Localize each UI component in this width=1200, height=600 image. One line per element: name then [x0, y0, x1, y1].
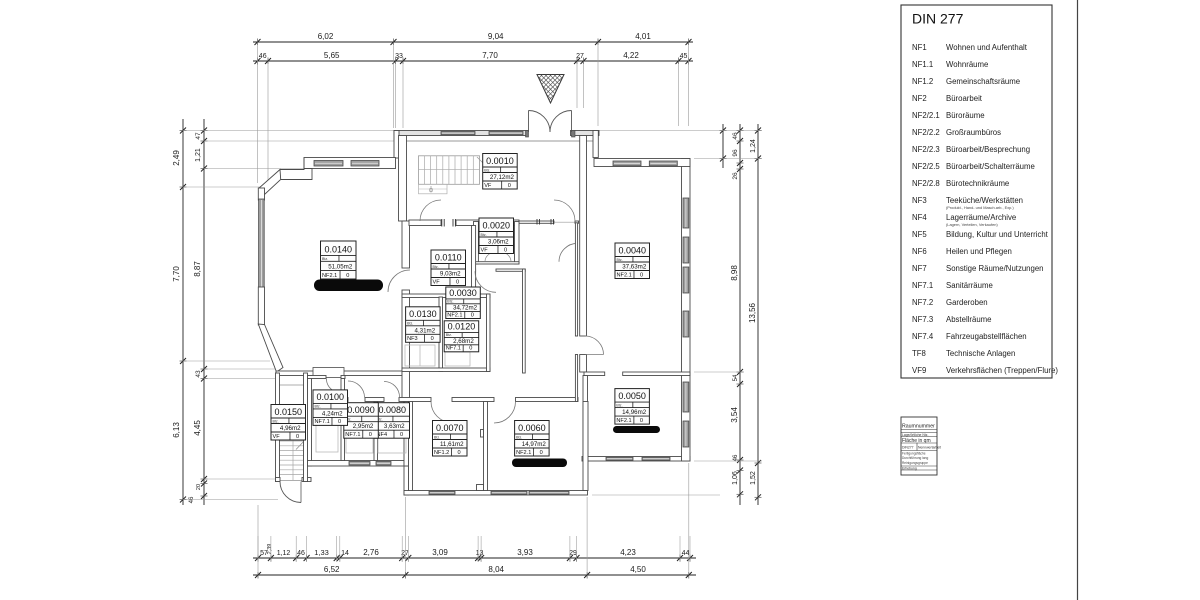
svg-text:46: 46 — [259, 53, 267, 60]
svg-text:VF: VF — [433, 279, 441, 285]
svg-text:Btz.: Btz. — [446, 333, 452, 337]
svg-text:27,12m2: 27,12m2 — [490, 174, 515, 181]
svg-text:VF9: VF9 — [912, 366, 926, 375]
svg-text:3,06m2: 3,06m2 — [488, 239, 509, 246]
svg-text:4,24m2: 4,24m2 — [322, 410, 343, 417]
svg-text:8,87: 8,87 — [193, 261, 202, 277]
svg-text:VF: VF — [484, 183, 492, 189]
svg-text:3,09: 3,09 — [432, 548, 448, 557]
svg-text:Verkehrsflächen (Treppen/Flure: Verkehrsflächen (Treppen/Flure) — [946, 366, 1058, 375]
svg-text:(Lagern, Verteilen, Verkaufen): (Lagern, Verteilen, Verkaufen) — [946, 222, 998, 227]
svg-text:51,05m2: 51,05m2 — [328, 263, 353, 270]
svg-text:2,76: 2,76 — [363, 548, 379, 557]
svg-text:Büroarbeit/Schalterräume: Büroarbeit/Schalterräume — [946, 162, 1035, 171]
svg-text:0.0040: 0.0040 — [618, 245, 646, 255]
svg-text:7,70: 7,70 — [172, 266, 181, 282]
svg-text:(Produkt., Hand- und Masch.arb: (Produkt., Hand- und Masch.arb., Exp.) — [946, 205, 1014, 210]
svg-text:3,93: 3,93 — [517, 548, 533, 557]
svg-text:NF7.4: NF7.4 — [912, 332, 934, 341]
svg-text:NF2/2.1: NF2/2.1 — [912, 111, 940, 120]
svg-text:0.0010: 0.0010 — [486, 156, 514, 166]
svg-text:6,02: 6,02 — [318, 32, 334, 41]
svg-text:0.0070: 0.0070 — [436, 423, 464, 433]
svg-text:4,23: 4,23 — [620, 548, 636, 557]
svg-text:Lage/örtliche Ntz.: Lage/örtliche Ntz. — [902, 433, 928, 437]
svg-text:Sanitärräume: Sanitärräume — [946, 281, 993, 290]
svg-text:Bürotechnikräume: Bürotechnikräume — [946, 179, 1009, 188]
svg-text:NF7.1: NF7.1 — [912, 281, 933, 290]
svg-text:Fläche in qm: Fläche in qm — [902, 438, 931, 444]
svg-text:0: 0 — [346, 273, 349, 279]
svg-text:4,31m2: 4,31m2 — [415, 327, 436, 334]
svg-text:1,06: 1,06 — [732, 471, 739, 485]
svg-text:8,98: 8,98 — [730, 265, 739, 281]
svg-text:TF8: TF8 — [912, 349, 926, 358]
svg-text:0: 0 — [508, 183, 511, 189]
svg-text:VF: VF — [273, 434, 281, 440]
svg-text:0: 0 — [504, 247, 507, 253]
svg-text:1,12: 1,12 — [277, 550, 291, 557]
svg-text:3,63m2: 3,63m2 — [384, 423, 405, 430]
svg-text:Garderoben: Garderoben — [946, 298, 988, 307]
svg-text:Fertigungsfläche: Fertigungsfläche — [902, 452, 926, 456]
svg-text:0: 0 — [640, 272, 643, 278]
svg-text:96: 96 — [732, 149, 739, 157]
svg-text:3,54: 3,54 — [730, 407, 739, 423]
svg-text:0: 0 — [640, 418, 643, 424]
svg-text:4,01: 4,01 — [635, 32, 651, 41]
svg-text:47: 47 — [195, 132, 202, 140]
svg-text:2,49: 2,49 — [172, 150, 181, 166]
svg-text:6,52: 6,52 — [324, 565, 340, 574]
svg-text:Btz.: Btz. — [447, 300, 453, 304]
svg-text:Fahrzeugabstellflächen: Fahrzeugabstellflächen — [946, 332, 1027, 341]
svg-text:0: 0 — [338, 419, 341, 425]
svg-text:Btz.: Btz. — [484, 168, 490, 172]
svg-text:NF6: NF6 — [912, 247, 927, 256]
svg-text:Sonstige Räume/Nutzungen: Sonstige Räume/Nutzungen — [946, 264, 1044, 273]
svg-text:14,96m2: 14,96m2 — [622, 409, 647, 416]
svg-text:8,04: 8,04 — [488, 565, 504, 574]
svg-text:0: 0 — [540, 450, 543, 456]
svg-text:Btz.: Btz. — [616, 403, 622, 407]
svg-text:7,70: 7,70 — [482, 51, 498, 60]
svg-text:2,68m2: 2,68m2 — [453, 338, 474, 345]
svg-text:NF2/2.3: NF2/2.3 — [912, 145, 940, 154]
svg-text:VF: VF — [481, 247, 489, 253]
svg-text:0.0140: 0.0140 — [324, 244, 352, 254]
svg-text:1,21: 1,21 — [195, 148, 202, 162]
svg-text:NF3: NF3 — [912, 196, 927, 205]
svg-text:43: 43 — [195, 370, 202, 378]
svg-text:0: 0 — [400, 432, 403, 438]
svg-text:0: 0 — [369, 432, 372, 438]
svg-text:29: 29 — [569, 550, 577, 557]
svg-text:NF3: NF3 — [407, 336, 418, 342]
svg-text:9,03m2: 9,03m2 — [440, 271, 461, 278]
svg-text:Durchführung lang: Durchführung lang — [902, 456, 928, 460]
svg-text:Technische Anlagen: Technische Anlagen — [946, 349, 1015, 358]
svg-text:44: 44 — [682, 550, 690, 557]
svg-text:NF7.2: NF7.2 — [912, 298, 933, 307]
svg-text:0.0060: 0.0060 — [518, 423, 546, 433]
svg-text:0.0050: 0.0050 — [618, 391, 646, 401]
svg-text:0.0030: 0.0030 — [449, 288, 477, 298]
svg-text:0.0090: 0.0090 — [347, 405, 375, 415]
svg-text:NF7.3: NF7.3 — [912, 315, 933, 324]
svg-text:5,65: 5,65 — [324, 51, 340, 60]
svg-text:DIN 277: DIN 277 — [912, 11, 964, 27]
svg-text:1,24: 1,24 — [750, 139, 757, 153]
svg-text:0: 0 — [458, 450, 461, 456]
svg-text:Btz.: Btz. — [322, 257, 328, 261]
svg-text:NF7.1: NF7.1 — [315, 419, 330, 425]
svg-text:Btz.: Btz. — [617, 258, 623, 262]
svg-text:Btz.: Btz. — [407, 322, 413, 326]
svg-text:37,63m2: 37,63m2 — [622, 264, 647, 271]
svg-text:9,04: 9,04 — [488, 32, 504, 41]
svg-text:0.0150: 0.0150 — [274, 407, 302, 417]
svg-text:Büroräume: Büroräume — [946, 111, 985, 120]
svg-text:54: 54 — [733, 374, 739, 381]
svg-text:NF7.1: NF7.1 — [345, 432, 360, 438]
svg-text:34,72m2: 34,72m2 — [453, 304, 478, 311]
svg-text:0.0120: 0.0120 — [448, 321, 476, 331]
svg-text:NF2.1: NF2.1 — [617, 272, 632, 278]
svg-text:Raumnummer: Raumnummer — [902, 424, 935, 430]
svg-text:4,96m2: 4,96m2 — [280, 425, 301, 432]
svg-text:14,97m2: 14,97m2 — [522, 441, 547, 448]
svg-text:0.0130: 0.0130 — [409, 309, 437, 319]
svg-text:DIN277: DIN277 — [902, 446, 914, 450]
svg-text:Btz.: Btz. — [516, 435, 522, 439]
svg-text:Büroarbeit: Büroarbeit — [946, 94, 983, 103]
svg-text:Btz.: Btz. — [273, 419, 279, 423]
svg-text:NF7: NF7 — [912, 264, 927, 273]
svg-text:Btz.: Btz. — [315, 405, 321, 409]
svg-text:Abstellräume: Abstellräume — [946, 315, 992, 324]
svg-text:NF1.2: NF1.2 — [912, 77, 933, 86]
svg-text:NF1: NF1 — [912, 43, 927, 52]
svg-text:NF4: NF4 — [912, 213, 927, 222]
svg-text:0.0110: 0.0110 — [435, 252, 462, 262]
svg-text:Erhebung: Erhebung — [902, 467, 917, 471]
svg-text:0: 0 — [296, 434, 299, 440]
svg-text:NF2/2.2: NF2/2.2 — [912, 128, 940, 137]
svg-text:Gemeinschaftsräume: Gemeinschaftsräume — [946, 77, 1020, 86]
svg-text:Reinigungsgruppe: Reinigungsgruppe — [902, 461, 928, 465]
svg-text:NF1.2: NF1.2 — [434, 450, 449, 456]
svg-text:Heilen und Pflegen: Heilen und Pflegen — [946, 247, 1012, 256]
svg-text:Lagerräume/Archive: Lagerräume/Archive — [946, 213, 1016, 222]
svg-text:20: 20 — [196, 484, 202, 490]
svg-text:2,95m2: 2,95m2 — [353, 423, 374, 430]
svg-text:13: 13 — [476, 550, 484, 557]
svg-text:46: 46 — [732, 132, 739, 140]
svg-text:4,45: 4,45 — [193, 420, 202, 436]
svg-text:27: 27 — [576, 53, 584, 60]
svg-text:Wohnen und Aufenthalt: Wohnen und Aufenthalt — [946, 43, 1028, 52]
svg-text:NF2.1: NF2.1 — [616, 418, 631, 424]
svg-text:Nennwertarbeit: Nennwertarbeit — [918, 446, 941, 450]
svg-text:4,22: 4,22 — [623, 51, 639, 60]
svg-text:0.0080: 0.0080 — [378, 405, 406, 415]
svg-text:26: 26 — [732, 172, 739, 180]
svg-text:11,61m2: 11,61m2 — [440, 441, 464, 448]
svg-text:NF7.1: NF7.1 — [446, 346, 461, 352]
svg-text:0: 0 — [431, 336, 434, 342]
svg-text:Wohnräume: Wohnräume — [946, 60, 988, 69]
svg-text:4,50: 4,50 — [630, 565, 646, 574]
svg-text:0: 0 — [471, 312, 474, 318]
svg-text:NF2/2.5: NF2/2.5 — [912, 162, 940, 171]
svg-text:NF1.1: NF1.1 — [912, 60, 933, 69]
svg-text:0: 0 — [456, 279, 459, 285]
svg-text:0.0020: 0.0020 — [482, 220, 510, 230]
svg-text:NF5: NF5 — [912, 230, 927, 239]
svg-text:46: 46 — [297, 550, 305, 557]
svg-text:NF2.1: NF2.1 — [516, 450, 531, 456]
svg-text:Btz.: Btz. — [481, 233, 487, 237]
svg-text:13,56: 13,56 — [748, 302, 757, 323]
svg-text:33: 33 — [395, 53, 403, 60]
svg-text:Büroarbeit/Besprechung: Büroarbeit/Besprechung — [946, 145, 1030, 154]
svg-text:1,33: 1,33 — [314, 548, 329, 557]
svg-text:Btz.: Btz. — [433, 265, 439, 269]
svg-text:0.0100: 0.0100 — [316, 392, 344, 402]
svg-text:14: 14 — [341, 550, 349, 557]
svg-text:Bildung, Kultur und Unterricht: Bildung, Kultur und Unterricht — [946, 230, 1049, 239]
svg-text:NF2.1: NF2.1 — [322, 273, 337, 279]
svg-text:0: 0 — [469, 346, 472, 352]
svg-text:45: 45 — [680, 53, 688, 60]
svg-text:Großraumbüros: Großraumbüros — [946, 128, 1001, 137]
svg-text:46: 46 — [733, 454, 739, 461]
svg-text:NF2: NF2 — [912, 94, 927, 103]
svg-text:NF2.1: NF2.1 — [447, 312, 462, 318]
svg-text:NF2/2.8: NF2/2.8 — [912, 179, 940, 188]
svg-text:Btz.: Btz. — [434, 435, 440, 439]
svg-text:Teeküche/Werkstätten: Teeküche/Werkstätten — [946, 196, 1023, 205]
svg-text:1,52: 1,52 — [750, 471, 757, 485]
svg-text:2,39: 2,39 — [267, 544, 273, 555]
svg-text:6,13: 6,13 — [172, 422, 181, 438]
